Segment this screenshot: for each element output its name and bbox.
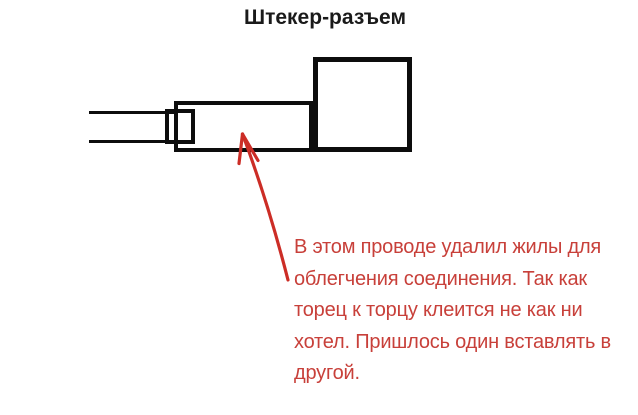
annotation-line: торец к торцу клеится не как ни	[294, 295, 611, 327]
annotation-arrow	[239, 134, 288, 280]
plug-body-rect	[176, 103, 311, 150]
annotation-arrow-shaft	[243, 134, 289, 280]
connector-housing-rect	[316, 60, 410, 150]
annotation-line: В этом проводе удалил жилы для	[294, 232, 611, 264]
annotation-line: облегчения соединения. Так как	[294, 264, 611, 296]
annotation-text: В этом проводе удалил жилы для облегчени…	[294, 232, 611, 390]
stripped-wire-end-rect	[167, 111, 193, 142]
annotation-line: другой.	[294, 358, 611, 390]
annotation-line: хотел. Пришлось один вставлять в	[294, 327, 611, 359]
annotation-arrow-left-barb	[239, 134, 243, 164]
page: Штекер-разъем В этом проводе удалил жилы…	[0, 0, 638, 415]
